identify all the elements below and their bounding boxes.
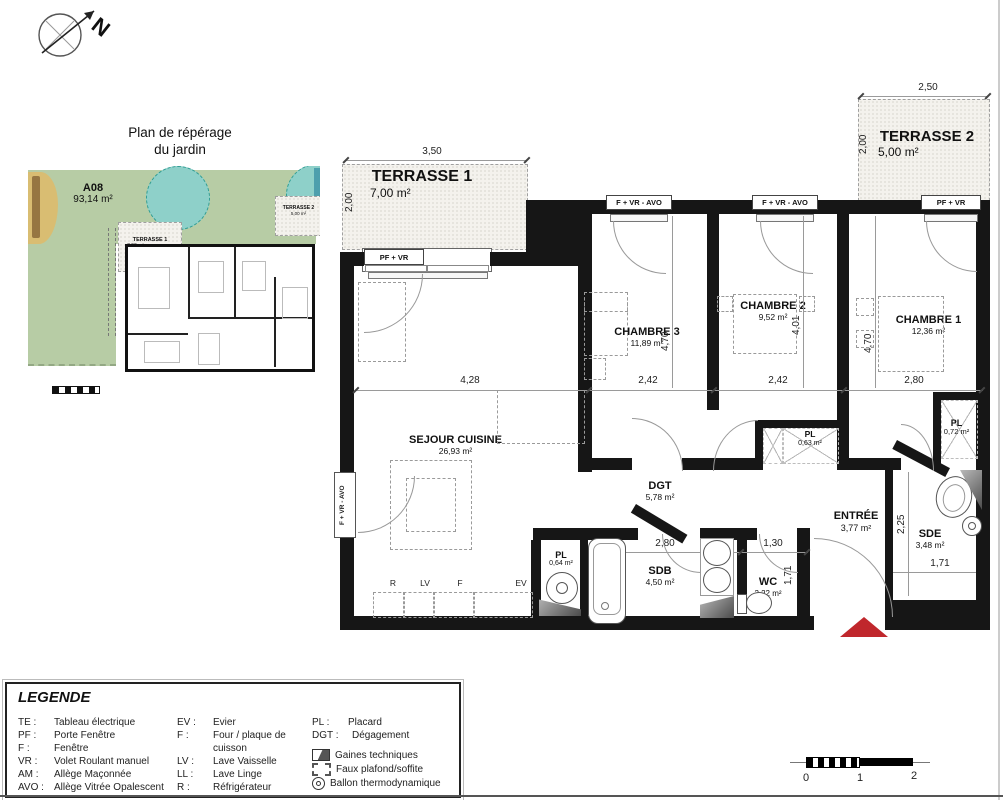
dimension-label: 2,25: [896, 506, 907, 542]
legend-abbr: LL :: [177, 768, 213, 781]
mini-furniture: [242, 261, 266, 291]
entree-label: ENTRÉE 3,77 m²: [820, 510, 892, 533]
room-area: 0,64 m²: [541, 560, 581, 568]
room-name: ENTRÉE: [820, 510, 892, 523]
duct-shaft: [763, 428, 783, 464]
floor-plan-sheet: N Plan de répérage du jardin A08 93,14 m…: [0, 0, 1003, 800]
dimension-label: 2,00: [344, 184, 355, 220]
ballon-icon-inner: [316, 781, 321, 786]
sejour-window: F + VR - AVO: [334, 472, 356, 538]
garden-title-line2: du jardin: [100, 142, 260, 159]
sink-icon: [703, 567, 731, 593]
unit-area: 93,14 m²: [58, 194, 128, 205]
legend-label: Tableau électrique: [54, 716, 135, 729]
dimension-label: 1,71: [915, 558, 965, 569]
dimension-label: 3,50: [402, 146, 462, 157]
legend-abbr: DGT :: [312, 729, 352, 742]
room-name: PL: [541, 550, 581, 560]
entrance-door-arc: [814, 538, 893, 617]
ballon-icon: [312, 777, 325, 790]
door-swing-arc: [759, 534, 798, 573]
legend-item: R :Réfrigérateur: [177, 781, 317, 794]
wardrobe-furniture: [358, 282, 406, 362]
door-panel: [365, 265, 427, 272]
legend-label: Ballon thermodynamique: [330, 778, 441, 789]
door-label: PF + VR: [364, 249, 424, 265]
room-name: PL: [783, 430, 837, 440]
legend-label: Allège Maçonnée: [54, 768, 131, 781]
pillow-furniture: [584, 292, 628, 312]
room-name: WC: [748, 576, 788, 589]
legend-label: Porte Fenêtre: [54, 729, 115, 742]
legend-abbr: EV :: [177, 716, 213, 729]
dimension-line: [875, 216, 876, 388]
room-area: 0,63 m²: [783, 440, 837, 448]
unit-code: A08: [58, 182, 128, 194]
terrasse2-label: TERRASSE 2 5,00 m²: [868, 128, 986, 159]
door-swing-arc: [632, 418, 683, 471]
legend-abbr: AM :: [18, 768, 54, 781]
wall-segment: [755, 420, 841, 428]
pl-kitchen-label: PL 0,64 m²: [541, 550, 581, 568]
mini-wall: [188, 247, 190, 319]
wall-segment: [580, 540, 588, 616]
legend-abbr: VR :: [18, 755, 54, 768]
bed-furniture: [878, 296, 944, 372]
dimension-line: [893, 572, 976, 573]
scale-tick-label: 1: [850, 772, 870, 784]
door-swing-arc: [713, 420, 758, 471]
legend-item: AM :Allège Maçonnée: [18, 768, 168, 781]
legend-abbr: PF :: [18, 729, 54, 742]
legend-abbr: PL :: [312, 716, 348, 729]
legend-item: DGT :Dégagement: [312, 729, 452, 742]
legend-label: Fenêtre: [54, 742, 88, 755]
legend-title: LEGENDE: [18, 689, 91, 706]
wall-segment: [490, 252, 592, 266]
gaines-icon: [312, 749, 330, 761]
mini-furniture: [198, 333, 220, 365]
legend-symbol-item: Ballon thermodynamique: [312, 776, 452, 790]
scale-bar: 0 1 2: [788, 748, 938, 788]
bed-furniture: [733, 294, 797, 354]
dimension-tick: [523, 157, 530, 164]
sejour-label: SEJOUR CUISINE 26,93 m²: [398, 434, 513, 456]
garden-title-line1: Plan de répérage: [100, 125, 260, 142]
wall-segment: [849, 458, 901, 470]
wall-segment: [340, 252, 364, 266]
dimension-line: [672, 216, 673, 388]
room-name: SEJOUR CUISINE: [398, 434, 513, 447]
legend-label: Réfrigérateur: [213, 781, 271, 794]
fence-line: [108, 228, 116, 336]
legend-symbol-item: Faux plafond/soffite: [312, 762, 452, 776]
dimension-label: 2,42: [748, 375, 808, 386]
legend-abbr: F :: [177, 729, 213, 755]
garden-locator-map: A08 93,14 m² TERRASSE 1 7,00 m² TERRASSE…: [28, 166, 320, 378]
sdb-label: SDB 4,50 m²: [630, 565, 690, 587]
nightstand-furniture: [799, 296, 815, 312]
room-area: 3,77 m²: [820, 523, 892, 533]
sink-icon: [703, 540, 731, 566]
room-area: 26,93 m²: [398, 447, 513, 457]
mini-terrasse2-area: 5,00 m²: [276, 211, 320, 216]
kitchen-counter: [373, 592, 533, 618]
door-swing-arc: [901, 424, 934, 471]
mini-scale-bar: [52, 386, 100, 394]
hedge-strip: [32, 176, 40, 238]
legend-abbr: LV :: [177, 755, 213, 768]
legend-abbr: AVO :: [18, 781, 54, 794]
legend-label: Evier: [213, 716, 236, 729]
mini-terrasse2: TERRASSE 2 5,00 m²: [275, 196, 320, 236]
legend-label: Gaines techniques: [335, 750, 418, 761]
room-area: 5,78 m²: [630, 493, 690, 503]
legend-box: LEGENDE TE :Tableau électrique PF :Porte…: [5, 682, 461, 798]
dimension-line: [908, 472, 909, 596]
appliance-label: LV: [415, 578, 435, 588]
drain-icon: [601, 602, 609, 610]
legend-label: Dégagement: [352, 729, 409, 742]
wall-segment: [578, 458, 632, 470]
dimension-label: 2,00: [858, 126, 869, 162]
appliance-label: EV: [511, 578, 531, 588]
terrasse1-label: TERRASSE 1 7,00 m²: [352, 168, 492, 200]
dimension-line: [355, 390, 983, 391]
legend-item: AVO :Allège Vitrée Opalescent: [18, 781, 168, 794]
legend-item: F :Four / plaque de cuisson: [177, 729, 317, 755]
wall-segment: [885, 616, 986, 630]
dimension-label: 4,70: [660, 322, 671, 360]
legend-abbr: TE :: [18, 716, 54, 729]
nightstand-furniture: [856, 298, 874, 316]
terrasse1-area: 7,00 m²: [352, 186, 492, 200]
legend-label: Faux plafond/soffite: [336, 764, 423, 775]
wall-segment: [533, 528, 638, 540]
door-panel: [427, 265, 489, 272]
mini-wall: [128, 333, 188, 335]
dimension-label: 2,42: [618, 375, 678, 386]
nightstand-furniture: [856, 330, 874, 348]
window-label: F + VR - AVO: [752, 195, 818, 210]
room-area: 0,72 m²: [935, 428, 978, 437]
wall-segment: [885, 470, 893, 600]
legend-abbr: F :: [18, 742, 54, 755]
dgt-label: DGT 5,78 m²: [630, 480, 690, 502]
scale-tick-label: 2: [904, 770, 924, 782]
tree-icon: [146, 166, 210, 230]
mini-furniture: [282, 287, 308, 319]
scale-segment-solid: [860, 758, 913, 766]
mini-furniture: [198, 261, 224, 293]
legend-item: VR :Volet Roulant manuel: [18, 755, 168, 768]
mini-floorplan: [125, 244, 315, 372]
legend-item: PF :Porte Fenêtre: [18, 729, 168, 742]
counter-divider: [473, 592, 475, 618]
wall-segment: [976, 200, 990, 630]
terrasse2-area: 5,00 m²: [868, 145, 986, 159]
water-heater-icon: [556, 582, 568, 594]
legend-item: LV :Lave Vaisselle: [177, 755, 317, 768]
legend-label: Allège Vitrée Opalescent: [54, 781, 164, 794]
legend-abbr: R :: [177, 781, 213, 794]
dimension-label: 2,50: [898, 82, 958, 93]
ballon-icon-inner: [968, 522, 976, 530]
room-name: DGT: [630, 480, 690, 493]
legend-label: Placard: [348, 716, 382, 729]
unit-tag: A08 93,14 m²: [58, 182, 128, 205]
door-swing-arc: [760, 221, 813, 274]
legend-col1: TE :Tableau électrique PF :Porte Fenêtre…: [18, 716, 168, 794]
nightstand-furniture: [717, 296, 733, 312]
kitchen-island-furniture: [497, 390, 585, 444]
duct-hatch: [700, 596, 734, 618]
legend-label: Volet Roulant manuel: [54, 755, 149, 768]
legend-item: EV :Evier: [177, 716, 317, 729]
terrasse2-name: TERRASSE 2: [868, 128, 986, 145]
dimension-label: 2,80: [884, 375, 944, 386]
sheet-edge: [998, 0, 1000, 800]
mini-furniture: [144, 341, 180, 363]
legend-label: Lave Linge: [213, 768, 262, 781]
room-area: 4,50 m²: [630, 578, 690, 588]
appliance-label: F: [450, 578, 470, 588]
dimension-label: 4,28: [440, 375, 500, 386]
legend-label: Lave Vaisselle: [213, 755, 277, 768]
nightstand-furniture: [584, 358, 606, 380]
wall-segment: [885, 600, 976, 616]
legend-item: TE :Tableau électrique: [18, 716, 168, 729]
appliance-label: R: [383, 578, 403, 588]
window-label: F + VR - AVO: [339, 475, 346, 535]
legend-item: LL :Lave Linge: [177, 768, 317, 781]
legend-symbol-item: Gaines techniques: [312, 748, 452, 762]
door-swing-arc: [926, 221, 977, 272]
dimension-line: [860, 96, 988, 97]
mini-furniture: [138, 267, 170, 309]
door-swing-arc: [613, 221, 666, 274]
wall-segment: [340, 266, 354, 472]
garden-plan-title: Plan de répérage du jardin: [100, 125, 260, 159]
counter-divider: [433, 592, 435, 618]
compass-rose: N: [28, 2, 118, 64]
mini-wall: [234, 247, 236, 319]
legend-label: Four / plaque de cuisson: [213, 729, 317, 755]
sheet-edge: [0, 795, 1003, 797]
wall-segment: [340, 616, 814, 630]
door-label: PF + VR: [921, 195, 981, 210]
terrasse1-name: TERRASSE 1: [352, 168, 492, 186]
sde-label: SDE 3,48 m²: [900, 528, 960, 550]
pl-entree-label: PL 0,72 m²: [935, 418, 978, 437]
dimension-line: [345, 160, 527, 161]
pl-couloir-label: PL 0,63 m²: [783, 430, 837, 448]
toilet-icon: [746, 592, 772, 614]
wall-segment: [797, 528, 810, 630]
room-area: 3,48 m²: [900, 541, 960, 551]
faux-plafond-icon: [312, 763, 331, 776]
garden-boundary-dash: [28, 364, 116, 366]
scale-segment-hatched: [806, 757, 860, 768]
dining-table-furniture: [406, 478, 456, 532]
legend-col2: EV :Evier F :Four / plaque de cuisson LV…: [177, 716, 317, 794]
legend-item: F :Fenêtre: [18, 742, 168, 755]
legend-col3: PL :Placard DGT :Dégagement Gaines techn…: [312, 716, 452, 790]
mini-wall: [274, 277, 276, 367]
scale-tick-label: 0: [796, 772, 816, 784]
entrance-arrow: [840, 617, 888, 637]
counter-divider: [403, 592, 405, 618]
window-label: F + VR - AVO: [606, 195, 672, 210]
room-name: SDE: [900, 528, 960, 541]
legend-item: PL :Placard: [312, 716, 452, 729]
